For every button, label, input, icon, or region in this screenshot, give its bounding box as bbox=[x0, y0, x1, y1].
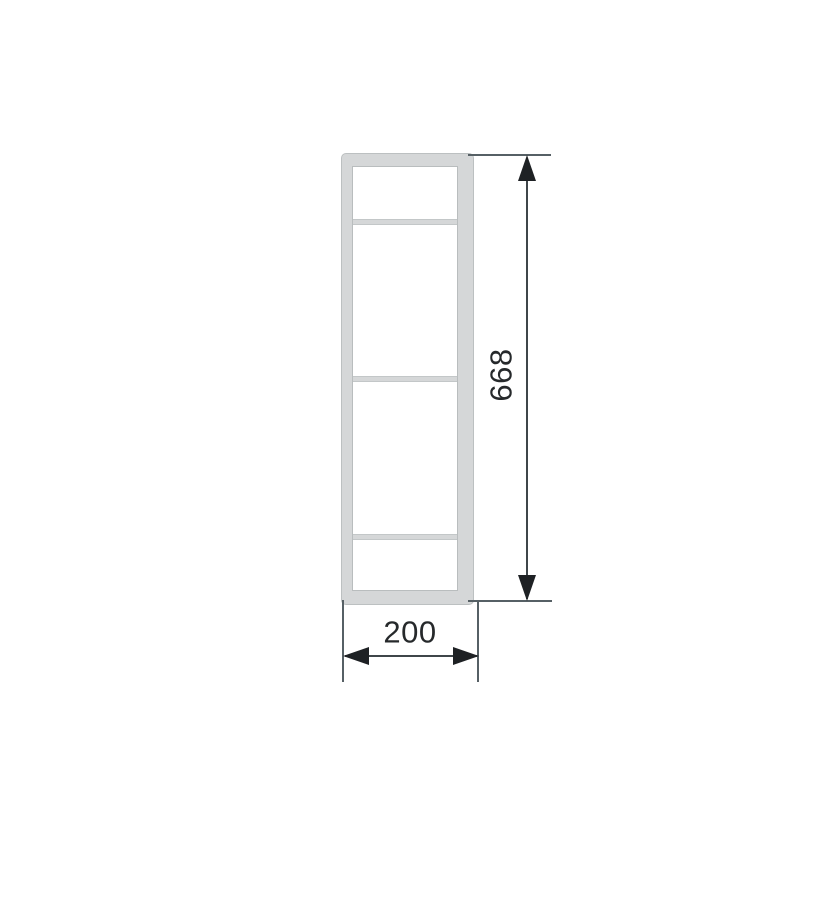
shelf-divider-top bbox=[353, 219, 457, 225]
arrow-right-icon bbox=[453, 647, 479, 665]
frame-outline bbox=[341, 153, 474, 605]
shelf-divider-bottom bbox=[353, 534, 457, 540]
drawing-canvas: 668 200 bbox=[0, 0, 823, 907]
extension-line-left bbox=[342, 600, 344, 682]
height-dimension-label: 668 bbox=[486, 348, 517, 401]
shelf-divider-middle bbox=[353, 376, 457, 382]
extension-line-bottom bbox=[468, 600, 552, 602]
height-dimension-line bbox=[526, 158, 528, 599]
arrow-left-icon bbox=[343, 647, 369, 665]
width-dimension-label: 200 bbox=[383, 617, 436, 648]
frame-inner-panel bbox=[352, 166, 458, 591]
arrow-down-icon bbox=[518, 575, 536, 601]
arrow-up-icon bbox=[518, 155, 536, 181]
extension-line-top bbox=[468, 154, 551, 156]
extension-line-right bbox=[477, 600, 479, 682]
